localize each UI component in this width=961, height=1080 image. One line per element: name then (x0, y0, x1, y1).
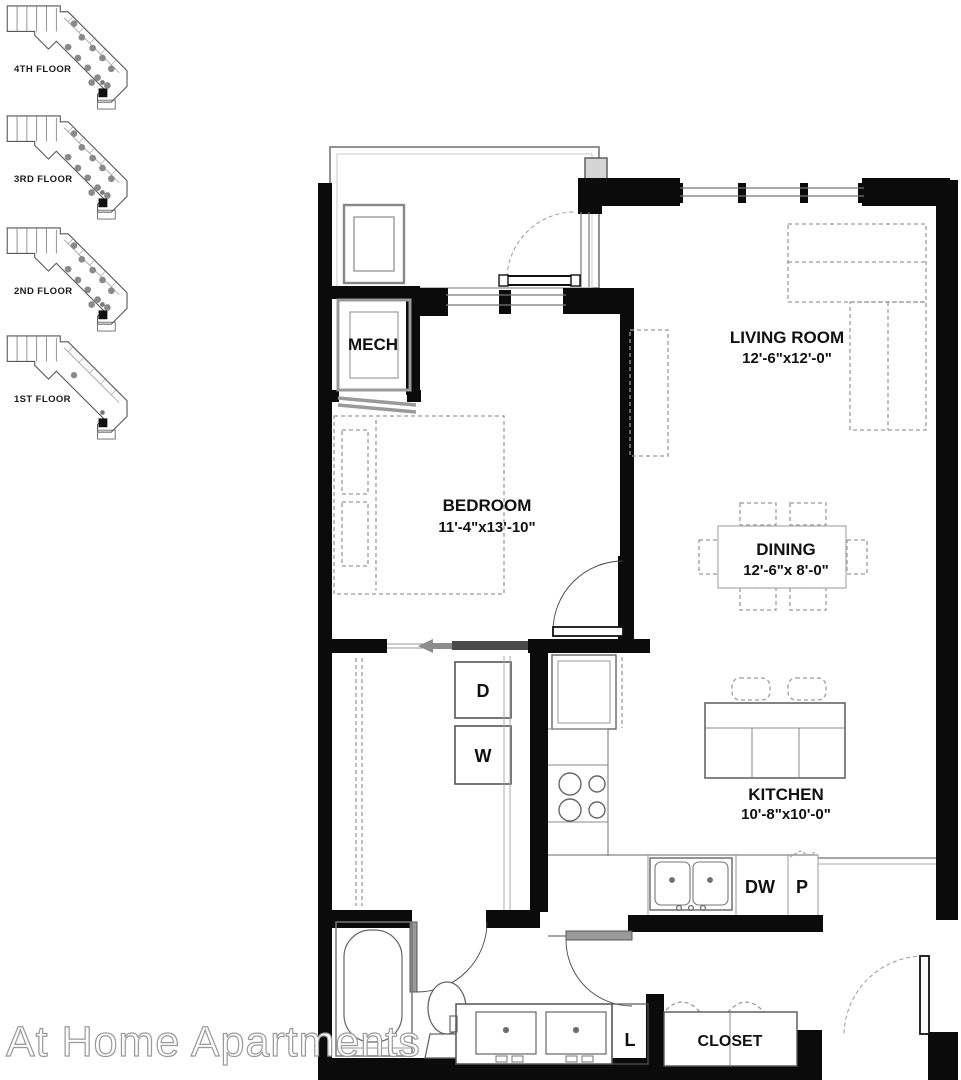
stool (732, 678, 770, 700)
living-room-label: LIVING ROOM (730, 328, 844, 347)
tv-console (630, 330, 668, 456)
pocket-door-arrow-icon (418, 639, 433, 653)
floorplan-page: 4TH FLOOR 3RD FLOOR 2ND FLOOR 1ST FLOOR (0, 0, 961, 1080)
unit-floorplan: LIVING ROOM 12'-6"x12'-0" BEDROOM 11'-4"… (0, 0, 961, 1080)
bedroom-label: BEDROOM (443, 496, 532, 515)
wall-bedroom-divider (620, 298, 634, 560)
mech-label: MECH (348, 335, 398, 354)
kitchen-sink (650, 858, 732, 910)
balcony (330, 147, 607, 288)
kitchen-label: KITCHEN (748, 785, 824, 804)
dryer-label: D (477, 681, 490, 701)
wall-left (318, 183, 332, 1080)
wall-entry-step (797, 1030, 822, 1080)
wall-kitchen-divider (530, 650, 548, 912)
balcony-equipment-unit (344, 205, 404, 283)
living-room-dims: 12'-6"x12'-0" (742, 350, 832, 367)
wall-kitchen-hall (628, 915, 823, 932)
stool (788, 678, 826, 700)
kitchen-island (705, 703, 845, 778)
mech-door (338, 398, 416, 412)
pantry-label: P (796, 877, 808, 897)
washer-label: W (475, 746, 492, 766)
hall-pocket-door (387, 639, 528, 653)
wall-right (936, 180, 958, 920)
closet-label: CLOSET (698, 1033, 763, 1050)
sofa (788, 224, 926, 302)
kitchen-fixtures (548, 655, 936, 915)
cooktop (559, 773, 605, 821)
refrigerator (552, 655, 616, 729)
entry-door (844, 956, 929, 1036)
hall-door (548, 931, 632, 1006)
linen-label: L (625, 1030, 636, 1050)
dishwasher-label: DW (745, 877, 775, 897)
bedroom-dims: 11'-4"x13'-10" (438, 519, 535, 536)
dining-label: DINING (756, 540, 816, 559)
vanity (450, 1004, 612, 1064)
watermark-brand: At Home Apartments (6, 1018, 421, 1067)
bedroom-door (553, 561, 623, 636)
dining-dims: 12'-6"x 8'-0" (743, 562, 829, 579)
wall-right-bottom-corner (928, 1032, 958, 1080)
kitchen-dims: 10'-8"x10'-0" (741, 806, 831, 823)
balcony-door (499, 212, 580, 286)
